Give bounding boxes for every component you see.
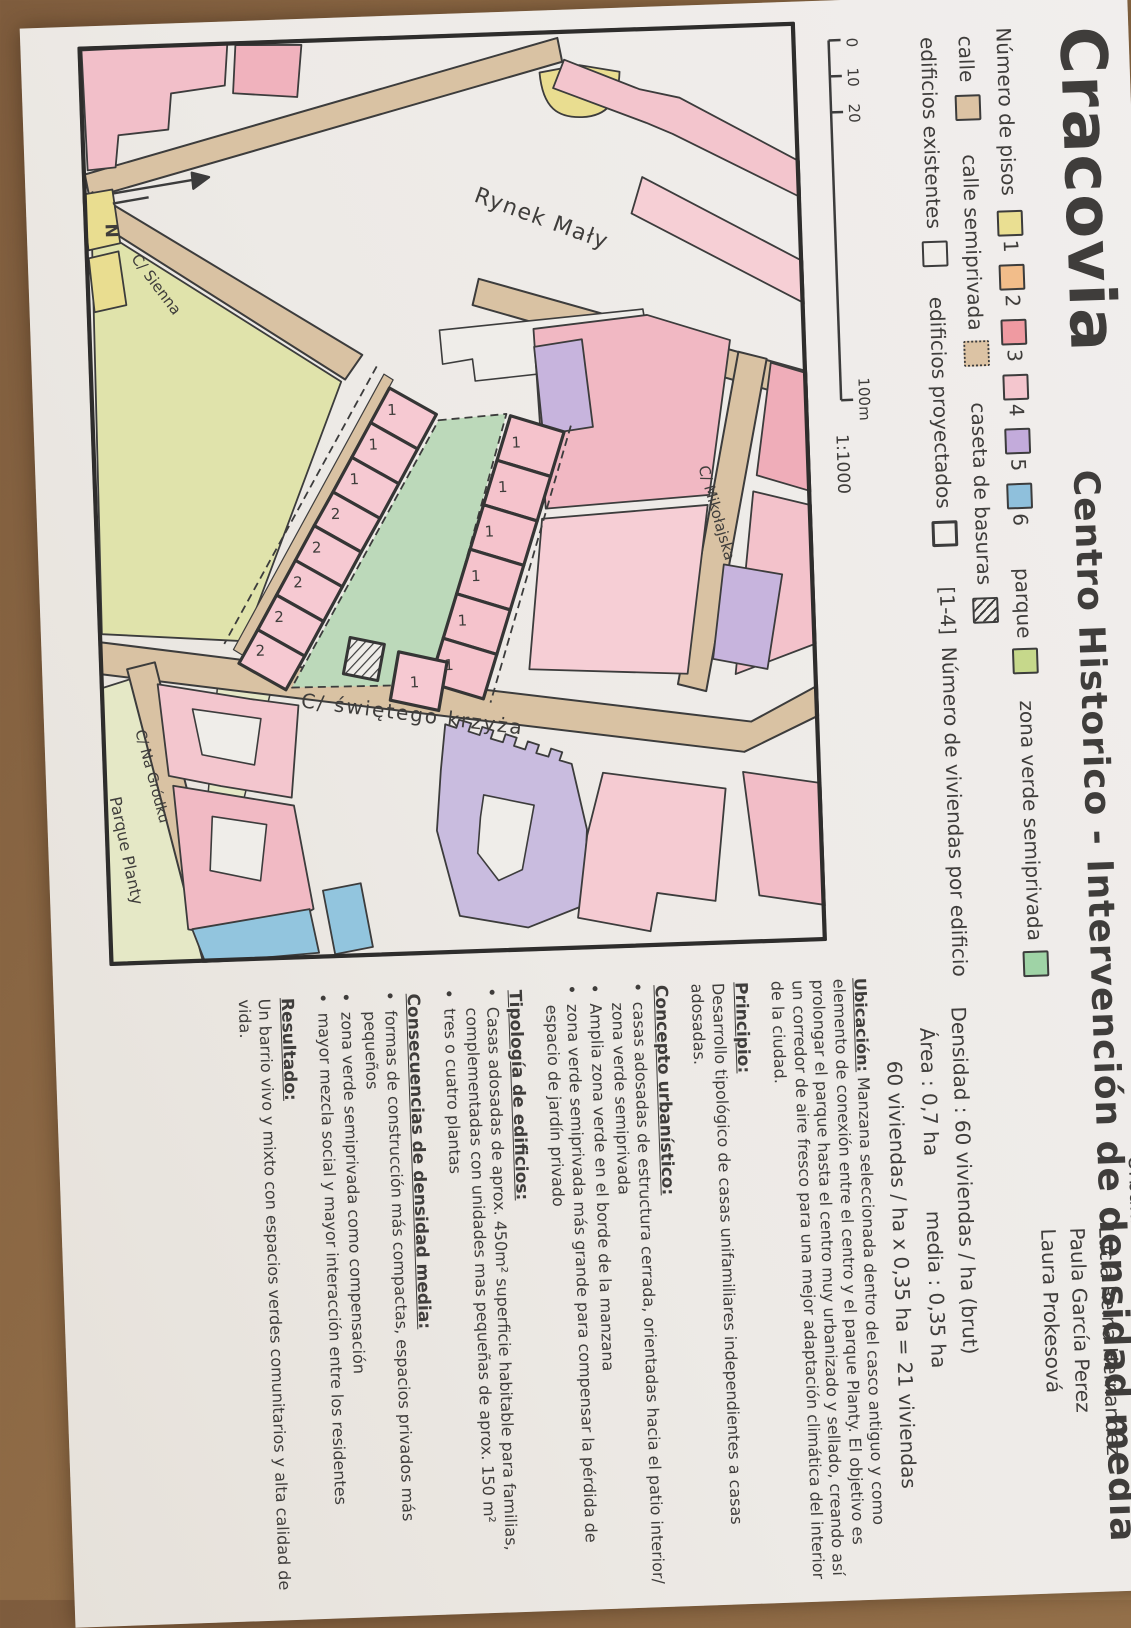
dwellings-note-prefix: [1-4]	[935, 586, 961, 635]
svg-text:1: 1	[387, 401, 397, 419]
existing-building	[231, 43, 303, 99]
tipologia-title: Tipología de edificios:	[504, 990, 533, 1201]
density-line-2: Área : 0,7 ha media : 0,35 ha	[915, 1027, 951, 1369]
existing-building	[573, 769, 730, 934]
semiprivate-street-swatch	[963, 340, 990, 367]
legend-projected-label: edificios proyectados	[925, 296, 956, 509]
svg-text:1: 1	[498, 478, 508, 496]
concepto-list: casas adosadas de estructura cerrada, or…	[540, 1001, 668, 1588]
floor-1-swatch	[997, 209, 1024, 236]
svg-text:2: 2	[255, 641, 265, 659]
svg-text:2: 2	[330, 505, 340, 523]
projected-building-swatch	[931, 520, 958, 547]
existing-building-blue	[323, 883, 373, 955]
svg-text:1: 1	[409, 673, 419, 691]
svg-text:1: 1	[349, 470, 359, 488]
photo-of-hand-drawn-urban-plan: { "header": { "title_main": "Cracovia", …	[0, 0, 1131, 1600]
svg-text:1: 1	[471, 567, 481, 585]
ubicacion-title: Ubicación:	[850, 978, 872, 1073]
svg-text:1: 1	[368, 435, 378, 453]
legend-row-floors: Número de pisos 1 2 3 4 5 6 parque zona …	[990, 27, 1049, 977]
dwellings-note: Número de viviendas por edificio	[937, 646, 973, 977]
scale-tick-20: 20	[845, 103, 864, 123]
svg-text:2: 2	[274, 608, 284, 626]
trash-hut-swatch	[972, 597, 999, 624]
scale-tick-10: 10	[844, 67, 863, 87]
legend-existing-label: edificios existentes	[916, 37, 947, 230]
legend-row-streets: calle calle semiprivada caseta de basura…	[953, 35, 999, 623]
legend-floors-label: Número de pisos	[991, 27, 1021, 196]
floor-5-number: 5	[1006, 458, 1030, 472]
existing-building-swatch	[922, 240, 949, 267]
city-map: 1 1 1 2 2 2 2 2 1 1 1 1 1 1 1 Rynek Mały…	[77, 22, 827, 966]
north-label: N	[101, 223, 121, 238]
authors-block: Lucía Reina Hernandez Paula García Perez…	[1033, 1226, 1128, 1458]
legend-park-label: parque	[1010, 568, 1036, 639]
scale-tick-0: 0	[843, 37, 861, 47]
existing-building	[552, 52, 801, 206]
legend-street-label: calle	[954, 35, 980, 82]
density-area: Área : 0,7 ha	[915, 1027, 943, 1156]
notes-column: Ubicación: Manzana seleccionada dentro d…	[228, 978, 890, 1600]
svg-text:2: 2	[312, 538, 322, 556]
svg-text:2: 2	[293, 573, 303, 591]
legend-greenzone-label: zona verde semiprivada	[1015, 700, 1047, 941]
scale-end-label: 100m	[854, 377, 873, 421]
label-rynek-maly: Rynek Mały	[471, 183, 612, 255]
existing-building	[630, 172, 805, 310]
existing-building	[743, 769, 826, 908]
courtyard	[208, 815, 268, 883]
scale-bar: 0 10 20 100m 1:1000	[815, 37, 877, 508]
floor-1-number: 1	[999, 239, 1023, 253]
street-swatch	[955, 94, 982, 121]
floor-6-number: 6	[1008, 513, 1032, 527]
floor-5-swatch	[1004, 428, 1031, 455]
svg-text:1: 1	[444, 656, 454, 674]
legend-trash-hut-label: caseta de basuras	[966, 402, 996, 585]
trash-hut	[342, 636, 386, 681]
floor-2-swatch	[999, 264, 1026, 291]
density-line-1: Densidad : 60 viviendas / ha (brut)	[946, 1006, 982, 1355]
floor-3-number: 3	[1002, 349, 1026, 363]
paper-sheet: Cracovia Centro Historico - Intervención…	[20, 0, 1131, 1628]
svg-text:1: 1	[484, 522, 494, 540]
scale-ratio: 1:1000	[831, 434, 853, 494]
density-media: media : 0,35 ha	[921, 1210, 950, 1368]
legend-semiprivate-street-label: calle semiprivada	[958, 154, 988, 331]
svg-text:1: 1	[511, 433, 521, 451]
density-line-3: 60 viviendas / ha x 0,35 ha = 21 viviend…	[882, 1060, 921, 1489]
ubicacion-paragraph: Ubicación: Manzana seleccionada dentro d…	[765, 978, 890, 1581]
greenzone-swatch	[1022, 950, 1049, 977]
park-swatch	[1012, 648, 1039, 675]
existing-building-purple	[534, 339, 593, 435]
resultado-title: Resultado:	[276, 998, 302, 1102]
page-title: Cracovia	[1044, 25, 1129, 354]
existing-building	[524, 505, 714, 679]
svg-text:1: 1	[457, 611, 467, 629]
floor-3-swatch	[1000, 319, 1027, 346]
principio-title: Principio:	[729, 982, 754, 1074]
floor-4-number: 4	[1004, 403, 1028, 417]
floor-6-swatch	[1006, 483, 1033, 510]
floor-4-swatch	[1002, 373, 1029, 400]
concepto-title: Concepto urbanístico:	[650, 984, 679, 1195]
floor-2-number: 2	[1001, 294, 1025, 308]
